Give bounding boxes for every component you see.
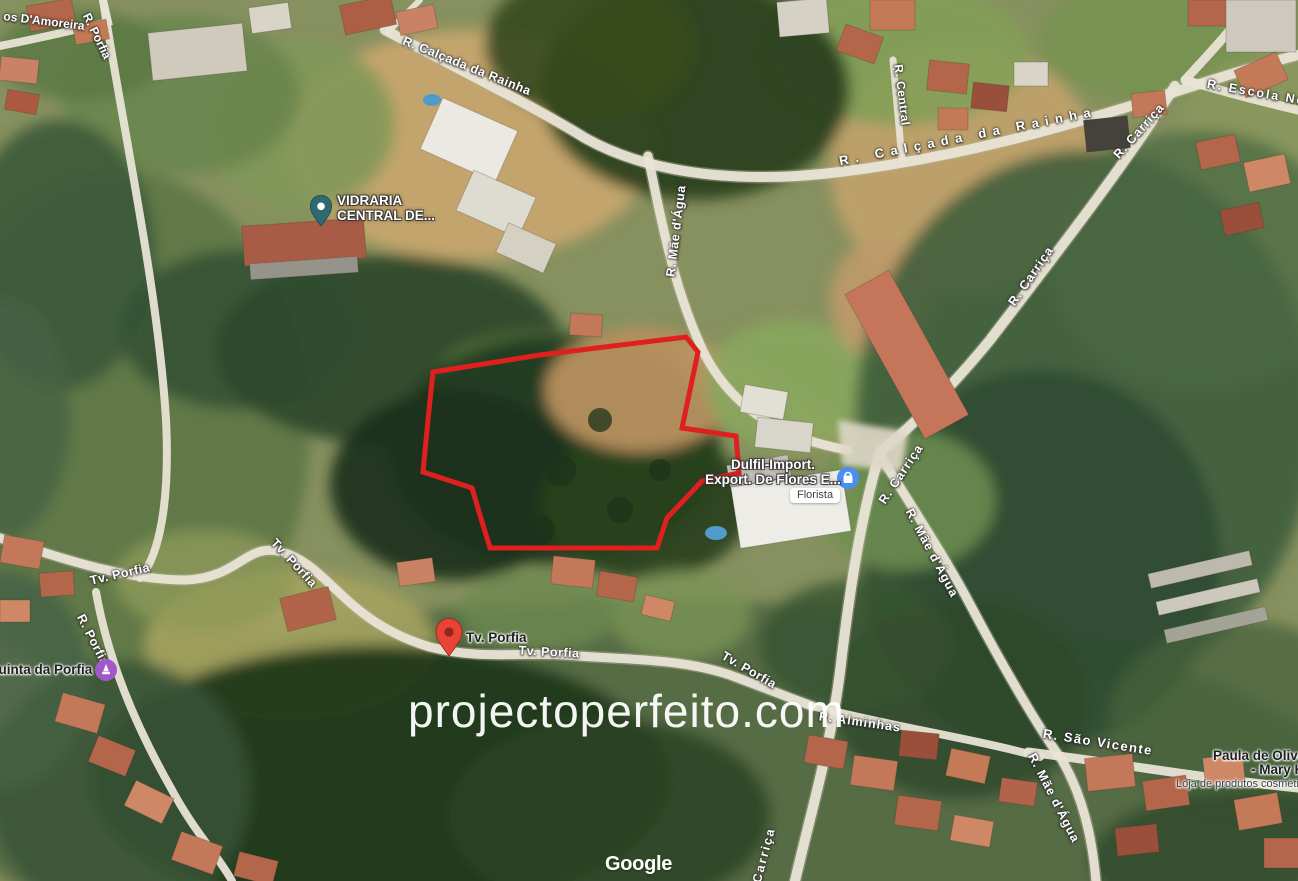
florista-category-badge[interactable]: Florista <box>790 488 840 503</box>
paula-label-line1[interactable]: Paula de Oliveira <box>1213 748 1298 763</box>
dulfil-label[interactable]: Dulfil-Import. Export. De Flores E... <box>705 457 841 487</box>
paula-label-line3: Loja de produtos cosméticos <box>1176 778 1298 790</box>
quinta-da-porfia-label[interactable]: Quinta da Porfia <box>0 662 92 677</box>
vidraria-label-line1: VIDRARIA <box>337 193 435 208</box>
dulfil-label-line1: Dulfil-Import. <box>705 457 841 472</box>
google-logo[interactable]: Google <box>605 853 672 876</box>
poi-layer: VIDRARIA CENTRAL DE... Dulfil-Import. Ex… <box>0 0 1298 881</box>
dulfil-label-line2: Export. De Flores E... <box>705 472 841 487</box>
vidraria-label-line2: CENTRAL DE... <box>337 208 435 223</box>
map-canvas[interactable]: os D'AmoreiraR. PorfiaR. Calçada da Rain… <box>0 0 1298 881</box>
vidraria-label[interactable]: VIDRARIA CENTRAL DE... <box>337 193 435 223</box>
dropped-pin-label[interactable]: Tv. Porfia <box>466 630 527 645</box>
site-watermark: projectoperfeito.com <box>408 684 845 738</box>
paula-label-line2[interactable]: - Mary Kay <box>1251 762 1298 777</box>
